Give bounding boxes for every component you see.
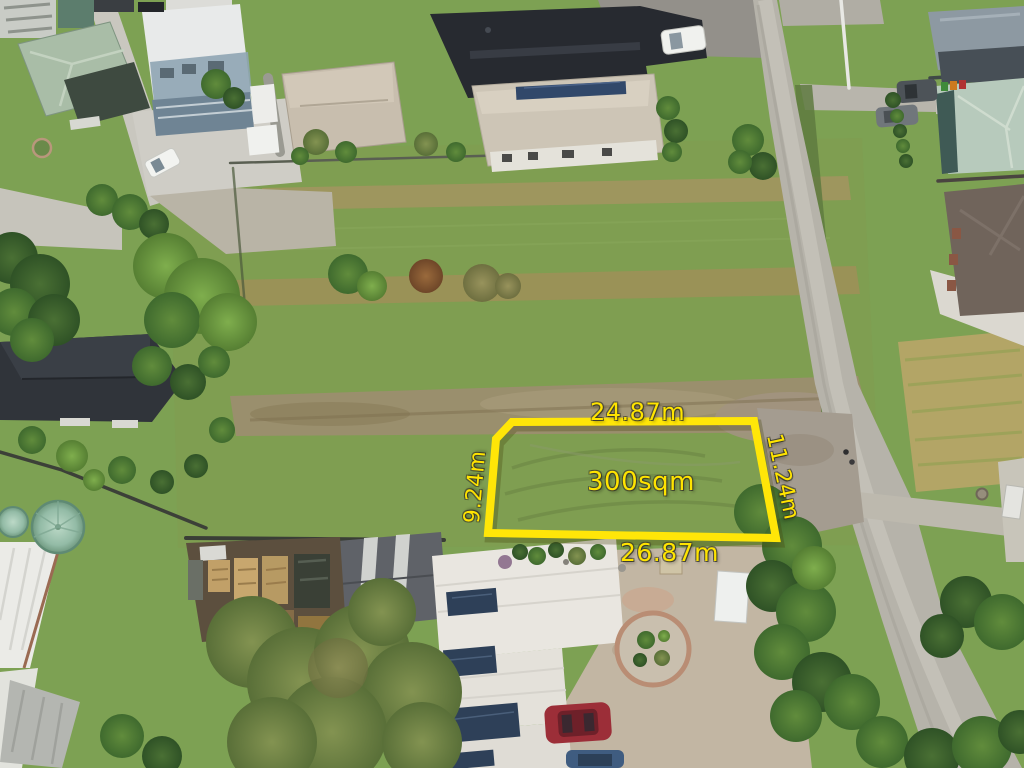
dark-suv — [896, 79, 937, 104]
teal-shed — [58, 0, 94, 28]
garden-circle — [617, 613, 689, 685]
gravel-debris — [622, 587, 674, 613]
garden-bush — [528, 547, 546, 565]
garden-bush — [590, 544, 606, 560]
white-tarp — [200, 545, 227, 561]
pedestrian — [849, 459, 855, 465]
aerial-scene — [0, 0, 1024, 768]
box-trailer — [714, 571, 749, 623]
blue-car — [566, 750, 624, 768]
house-mint-roof — [936, 78, 1024, 174]
cross-street-top — [779, 0, 884, 26]
garden-bush — [512, 544, 528, 560]
white-ute — [247, 125, 280, 156]
pallet-stack — [208, 560, 230, 592]
red-car — [544, 702, 612, 745]
green-bin — [941, 82, 948, 91]
plot-area-label: 300sqm — [587, 469, 695, 495]
pedestrian — [843, 449, 849, 455]
plot-top-measurement: 24.87m — [590, 400, 685, 424]
pallet-stack — [234, 558, 258, 602]
house-beige-solar — [472, 74, 664, 172]
plot-bottom-measurement: 26.87m — [620, 540, 719, 565]
garden-bush — [568, 547, 586, 565]
house-bluegray-roof — [928, 6, 1024, 84]
garden-bush — [548, 542, 564, 558]
water-tank — [0, 507, 28, 537]
pallet-stack — [262, 556, 288, 604]
manhole — [977, 489, 988, 500]
white-trailer — [250, 84, 278, 124]
white-ute-right — [1002, 485, 1024, 519]
house-modern-white — [142, 4, 254, 136]
parked-vehicle — [94, 0, 134, 12]
aerial-property-photo: 24.87m 11.24m 26.87m 9.24m 300sqm — [0, 0, 1024, 768]
orange-bin — [950, 81, 957, 90]
solar-array — [446, 588, 498, 616]
red-bin — [959, 80, 966, 89]
flowering-bush — [498, 555, 512, 569]
machinery — [188, 560, 203, 600]
parked-vehicle — [138, 2, 164, 12]
